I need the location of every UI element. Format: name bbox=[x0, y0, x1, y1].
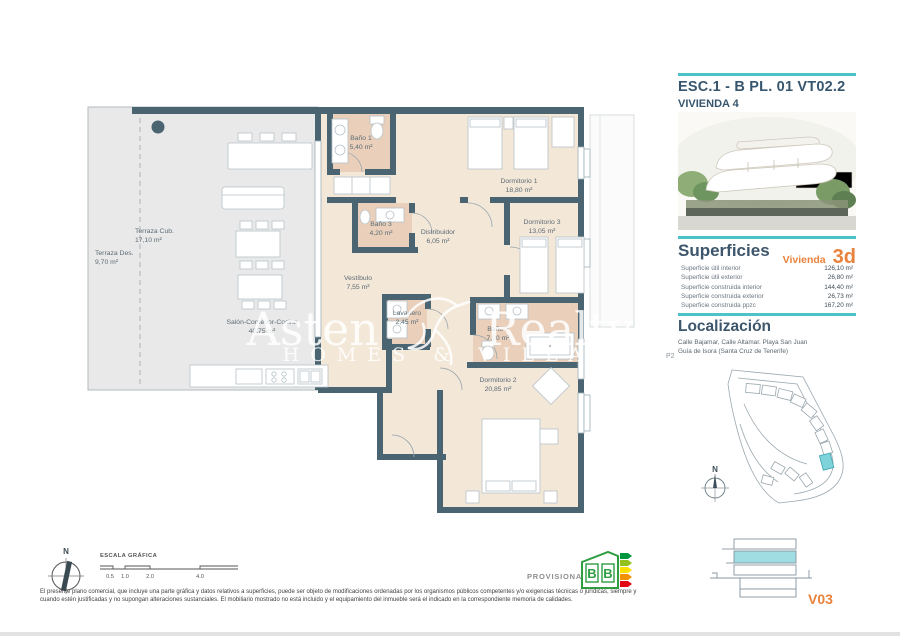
disclaimer-line2: cuando estén justificadas y no supongan … bbox=[40, 597, 644, 605]
scale-tick: 0.5 bbox=[106, 574, 114, 580]
room-area-vestibulo: 7,55 m² bbox=[346, 284, 370, 291]
teal-rule-top bbox=[678, 73, 856, 76]
superficies-table: Superficie útil interior 126,10 m² Super… bbox=[681, 264, 853, 310]
room-area-banyo3: 4,20 m² bbox=[369, 230, 393, 237]
teal-rule-localizacion bbox=[678, 313, 856, 316]
svg-text:N: N bbox=[63, 547, 69, 556]
floor-plan-drawing: Terraza Cub. 17,10 m² Terraza Des. 9,70 … bbox=[40, 85, 665, 535]
superficie-row: Superficie útil interior 126,10 m² bbox=[681, 264, 853, 273]
graphic-scale: ESCALA GRÁFICA 0.5 1.0 2.0 4.0 bbox=[88, 548, 283, 582]
room-label-dormitorio1: Dormitorio 1 bbox=[500, 178, 537, 185]
energy-certificate-icon: B B bbox=[578, 548, 634, 592]
room-area-terraza-des: 9,70 m² bbox=[95, 259, 119, 266]
localizacion-title: Localización bbox=[678, 318, 771, 336]
room-area-banyo2: 7,00 m² bbox=[486, 335, 510, 342]
page-edge-strip bbox=[0, 632, 900, 636]
superficie-row: Superficie útil exterior 26,80 m² bbox=[681, 273, 853, 282]
superficie-row: Superficie construida ppzc 167,20 m² bbox=[681, 301, 853, 310]
room-area-salon: 40,75 m² bbox=[249, 328, 277, 335]
room-label-lavadero: Lavadero bbox=[393, 310, 422, 317]
room-label-salon: Salón-Comedor-Cocina bbox=[226, 319, 297, 326]
site-plan-ref: P2 bbox=[666, 353, 675, 360]
scale-tick: 2.0 bbox=[146, 574, 154, 580]
address: Calle Bajamar, Calle Altamar. Playa San … bbox=[678, 338, 856, 356]
scale-tick: 4.0 bbox=[196, 574, 204, 580]
superficie-row: Superficie construida exterior 26,73 m² bbox=[681, 292, 853, 301]
plan-code: ESC.1 - B PL. 01 VT02.2 bbox=[678, 79, 845, 95]
room-area-dormitorio3: 13,05 m² bbox=[529, 228, 557, 235]
legal-disclaimer: El presente plano comercial, que incluye… bbox=[40, 589, 644, 604]
room-area-distribuidor: 6,05 m² bbox=[426, 238, 450, 245]
room-area-lavadero: 2,45 m² bbox=[395, 319, 419, 326]
room-area-dormitorio1: 18,80 m² bbox=[506, 187, 534, 194]
energy-letter: B bbox=[603, 566, 612, 581]
site-compass-icon: N bbox=[701, 465, 729, 502]
room-label-banyo2: Baño 2 bbox=[487, 326, 509, 333]
superficies-title: Superficies bbox=[678, 241, 770, 261]
room-area-dormitorio2: 20,85 m² bbox=[485, 386, 513, 393]
room-area-banyo1: 5,40 m² bbox=[349, 144, 373, 151]
side-patio bbox=[590, 115, 634, 327]
room-label-terraza-cub: Terraza Cub. bbox=[135, 228, 174, 235]
scale-title: ESCALA GRÁFICA bbox=[100, 552, 158, 559]
room-label-banyo1: Baño 1 bbox=[350, 135, 372, 142]
version-label: V03 bbox=[808, 591, 833, 607]
teal-rule-superficies bbox=[678, 236, 856, 239]
unit-title: VIVIENDA 4 bbox=[678, 98, 739, 110]
room-label-dormitorio3: Dormitorio 3 bbox=[523, 219, 560, 226]
section-diagram bbox=[706, 534, 816, 600]
room-area-terraza-cub: 17,10 m² bbox=[135, 237, 163, 244]
address-line1: Calle Bajamar, Calle Altamar. Playa San … bbox=[678, 338, 856, 347]
superficie-row: Superficie construida interior 144,40 m² bbox=[681, 283, 853, 292]
building-rendering bbox=[678, 112, 856, 230]
room-label-terraza-des: Terraza Des. bbox=[95, 250, 134, 257]
plan-sheet: Terraza Cub. 17,10 m² Terraza Des. 9,70 … bbox=[0, 0, 900, 640]
svg-text:N: N bbox=[712, 465, 718, 474]
address-line2: Guía de Isora (Santa Cruz de Tenerife) bbox=[678, 347, 856, 356]
room-label-distribuidor: Distribuidor bbox=[421, 229, 456, 236]
room-label-vestibulo: Vestíbulo bbox=[344, 275, 372, 282]
room-label-banyo3: Baño 3 bbox=[370, 221, 392, 228]
room-label-dormitorio2: Dormitorio 2 bbox=[479, 377, 516, 384]
energy-arrows bbox=[620, 553, 632, 587]
site-plan: N bbox=[682, 364, 860, 516]
disclaimer-line1: El presente plano comercial, que incluye… bbox=[40, 589, 644, 597]
scale-tick: 1.0 bbox=[121, 574, 129, 580]
energy-letter: B bbox=[587, 566, 596, 581]
